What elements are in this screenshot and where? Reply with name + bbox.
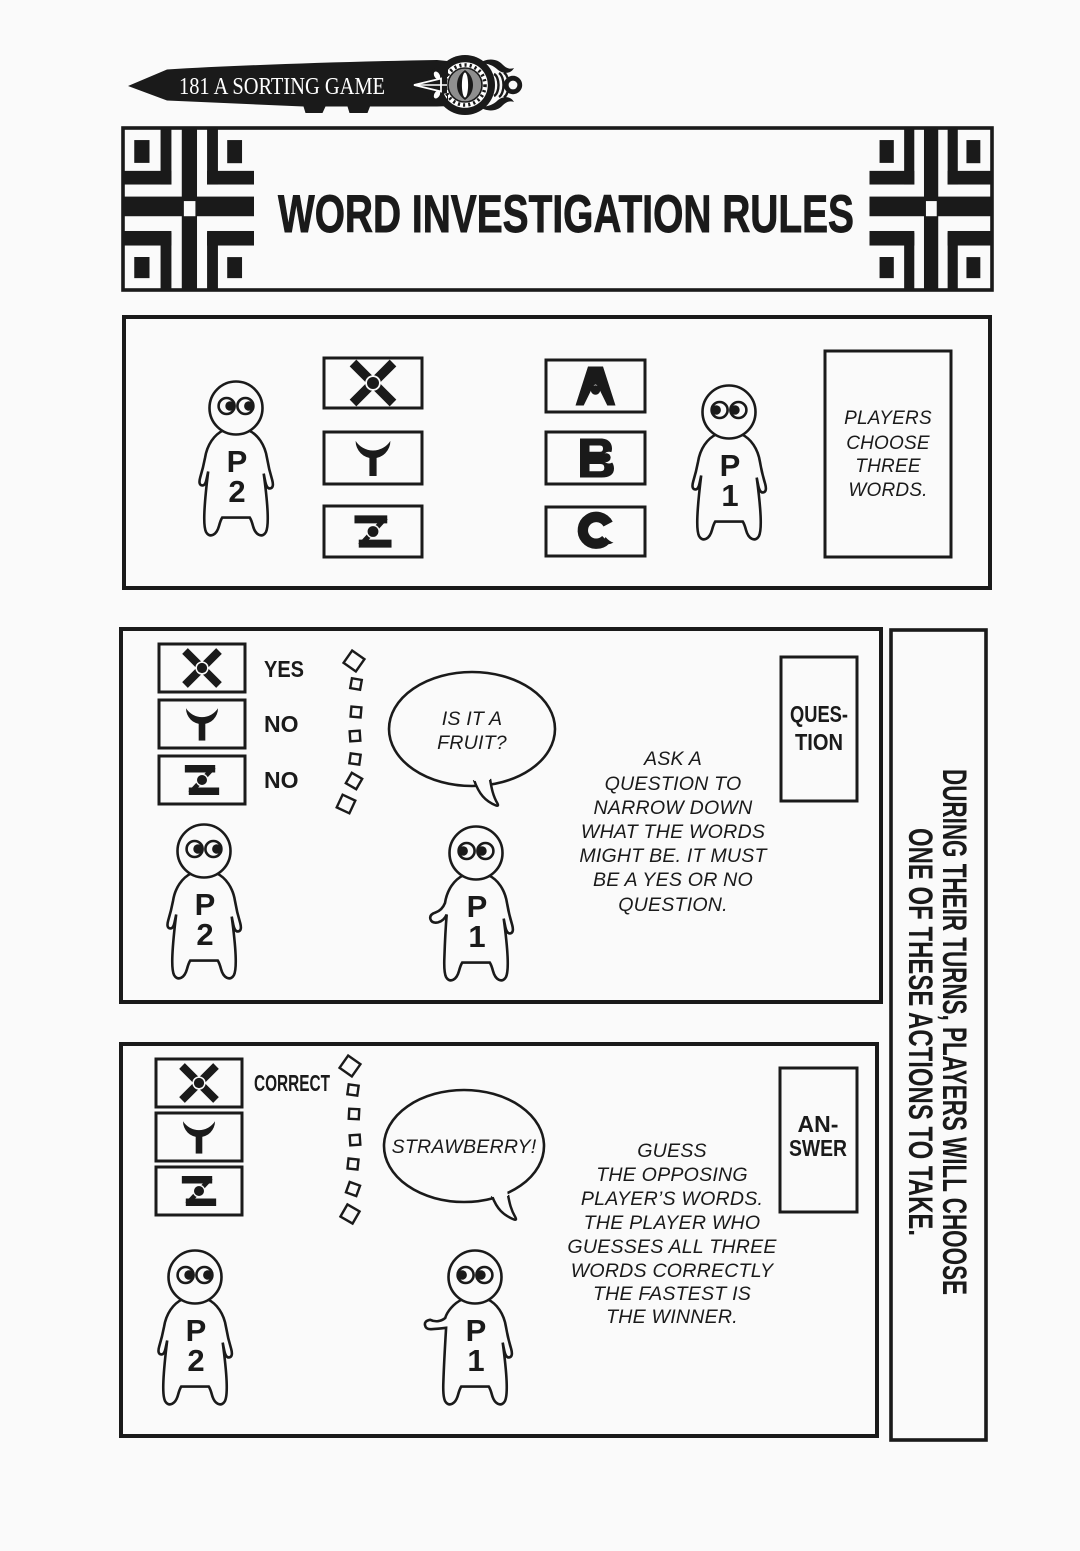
svg-text:ASK A: ASK A bbox=[643, 748, 702, 770]
svg-text:SWER: SWER bbox=[789, 1135, 847, 1161]
svg-text:NARROW DOWN: NARROW DOWN bbox=[594, 797, 754, 819]
svg-text:WORD INVESTIGATION RULES: WORD INVESTIGATION RULES bbox=[278, 185, 854, 244]
svg-text:STRAWBERRY!: STRAWBERRY! bbox=[392, 1136, 537, 1158]
svg-text:DURING THEIR TURNS, PLAYERS WI: DURING THEIR TURNS, PLAYERS WILL CHOOSE bbox=[935, 769, 973, 1295]
svg-text:WHAT THE WORDS: WHAT THE WORDS bbox=[581, 821, 765, 843]
svg-text:QUES-: QUES- bbox=[790, 701, 848, 727]
svg-text:WORDS.: WORDS. bbox=[848, 480, 927, 501]
svg-text:THREE: THREE bbox=[855, 456, 921, 477]
svg-text:AN-: AN- bbox=[798, 1111, 839, 1137]
svg-text:YES: YES bbox=[264, 656, 304, 682]
svg-text:FRUIT?: FRUIT? bbox=[437, 732, 507, 754]
svg-text:ONE OF THESE ACTIONS TO TAKE.: ONE OF THESE ACTIONS TO TAKE. bbox=[901, 828, 939, 1236]
svg-text:CHOOSE: CHOOSE bbox=[846, 433, 930, 454]
svg-text:WORDS CORRECTLY: WORDS CORRECTLY bbox=[571, 1260, 775, 1282]
svg-text:PLAYER’S WORDS.: PLAYER’S WORDS. bbox=[581, 1188, 763, 1210]
svg-text:NO: NO bbox=[264, 711, 299, 737]
svg-text:GUESSES ALL THREE: GUESSES ALL THREE bbox=[567, 1236, 777, 1258]
svg-text:QUESTION.: QUESTION. bbox=[618, 894, 728, 916]
svg-text:CORRECT: CORRECT bbox=[254, 1070, 330, 1096]
svg-text:THE OPPOSING: THE OPPOSING bbox=[596, 1164, 748, 1186]
svg-text:THE PLAYER WHO: THE PLAYER WHO bbox=[584, 1212, 761, 1234]
svg-text:IS IT A: IS IT A bbox=[442, 708, 503, 730]
svg-text:2: 2 bbox=[228, 474, 245, 509]
svg-text:QUESTION TO: QUESTION TO bbox=[605, 773, 742, 795]
svg-text:PLAYERS: PLAYERS bbox=[844, 408, 932, 429]
svg-text:MIGHT BE. IT MUST: MIGHT BE. IT MUST bbox=[579, 845, 768, 867]
svg-text:2: 2 bbox=[187, 1343, 204, 1378]
svg-text:NO: NO bbox=[264, 767, 299, 793]
svg-text:BE A YES OR NO: BE A YES OR NO bbox=[593, 869, 753, 891]
svg-text:TION: TION bbox=[795, 729, 843, 755]
svg-text:THE FASTEST IS: THE FASTEST IS bbox=[593, 1283, 751, 1305]
svg-text:181 A SORTING GAME: 181 A SORTING GAME bbox=[179, 74, 385, 100]
svg-text:GUESS: GUESS bbox=[637, 1140, 707, 1162]
svg-text:1: 1 bbox=[467, 1343, 484, 1378]
svg-text:2: 2 bbox=[196, 917, 213, 952]
svg-text:1: 1 bbox=[721, 478, 738, 513]
svg-text:1: 1 bbox=[468, 919, 485, 954]
svg-text:THE WINNER.: THE WINNER. bbox=[606, 1306, 738, 1328]
